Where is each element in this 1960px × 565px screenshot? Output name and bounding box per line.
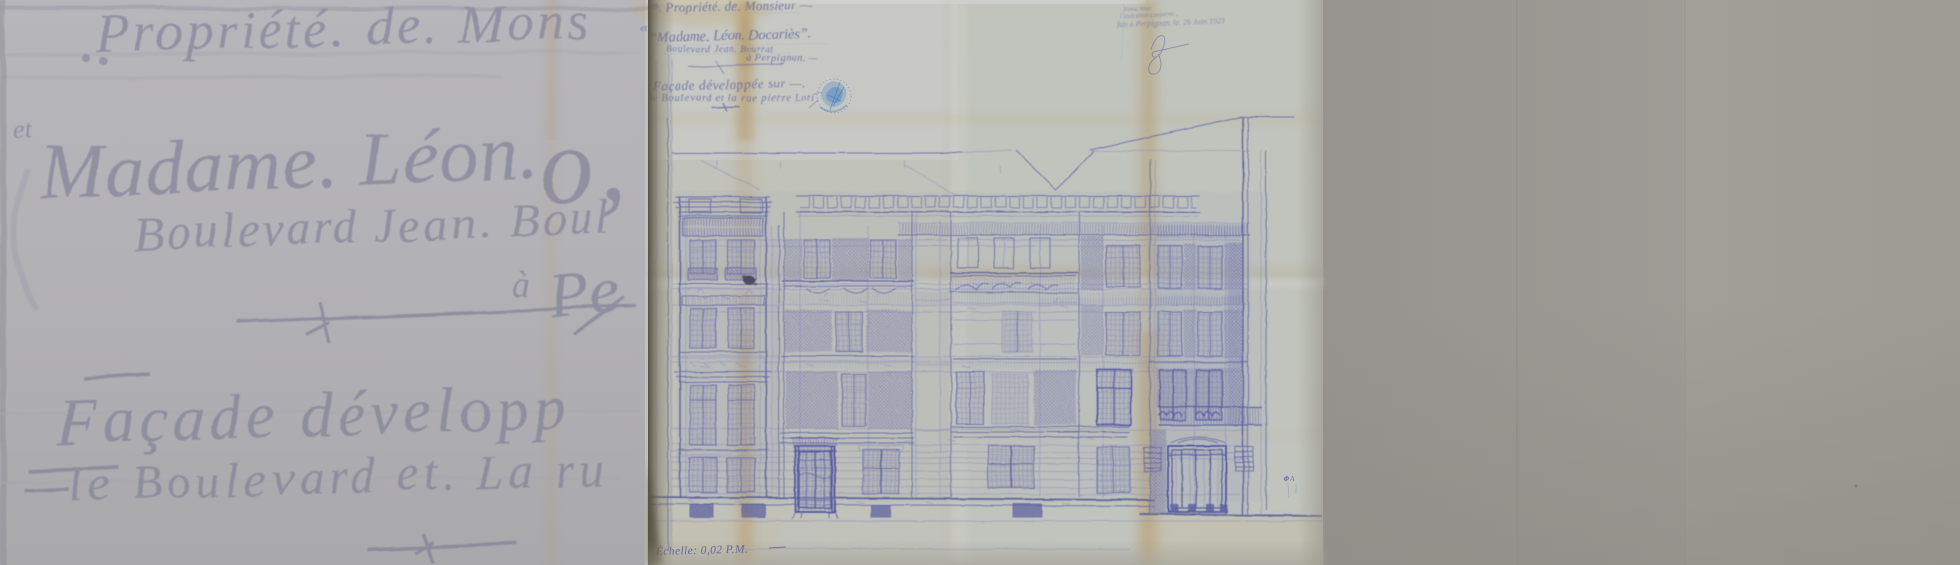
- svg-text:Façade développée sur —.: Façade développée sur —.: [652, 75, 806, 93]
- svg-text:𝚽 A: 𝚽 A: [1283, 475, 1295, 483]
- svg-text:et: et: [641, 23, 648, 33]
- svg-text:et: et: [12, 116, 33, 146]
- svg-text:à: à: [512, 263, 531, 305]
- svg-text:Pe: Pe: [546, 254, 623, 333]
- svg-text:à Perpignan. —: à Perpignan. —: [746, 53, 819, 64]
